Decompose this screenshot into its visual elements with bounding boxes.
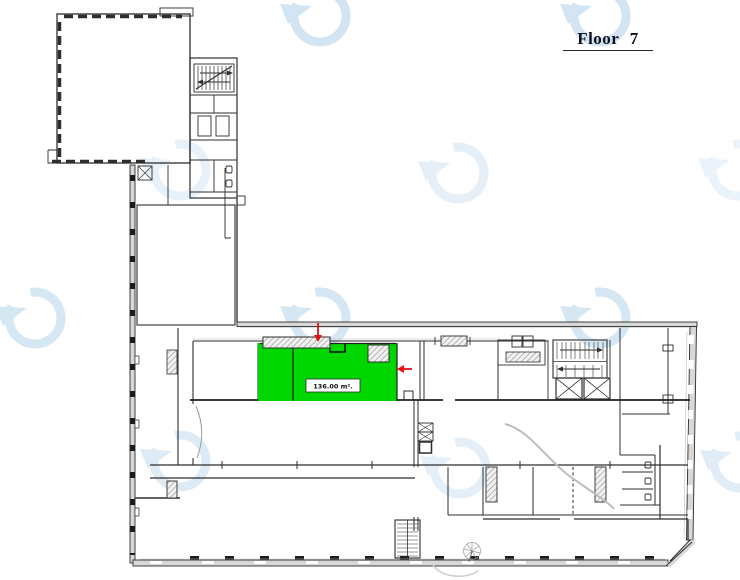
- watermark-logo-icon: [280, 0, 350, 46]
- floor-title-group: Floor 7: [563, 29, 653, 51]
- watermark-logo-icon: [418, 143, 488, 203]
- stairs-lower: [395, 520, 420, 558]
- arrow-left-head-icon: [397, 365, 404, 373]
- upper-rooms-band: [167, 328, 690, 465]
- floor-plan-viewer: 136.00 m².: [0, 0, 740, 580]
- watermark-logo-icon: [420, 438, 490, 498]
- corridor-and-lower-rooms: [135, 399, 688, 576]
- watermark-logo-icon: [700, 432, 740, 492]
- watermark-logo-icon: [0, 288, 65, 348]
- stairs-upper: [194, 64, 234, 92]
- watermark-logo-icon: [140, 140, 210, 200]
- floor-title: Floor 7: [577, 29, 639, 48]
- upper-left-wing: [48, 8, 245, 205]
- watermark-layer: [0, 0, 740, 498]
- unit-area-label: 136.00 m².: [313, 383, 352, 391]
- connector-wing: [137, 165, 237, 325]
- floor-plan-canvas: 136.00 m².: [0, 0, 740, 580]
- elevator-shafts: [556, 378, 610, 399]
- upper-middle-rooms: [420, 336, 545, 399]
- core-stairs-elevators: [548, 340, 610, 399]
- watermark-logo-icon: [698, 140, 740, 200]
